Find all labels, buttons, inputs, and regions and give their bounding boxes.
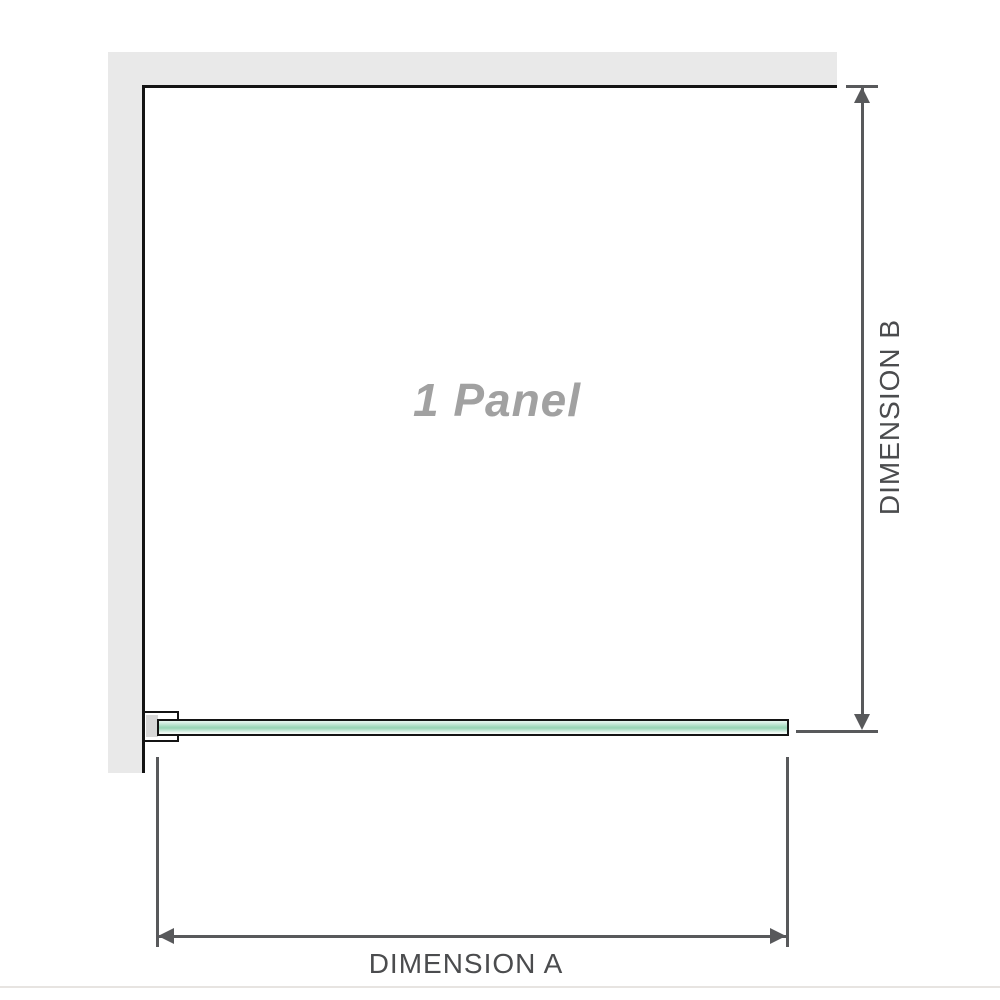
dimension-a-right-extension (786, 757, 789, 947)
dimension-a-left-extension (156, 757, 159, 947)
dimension-a-label: DIMENSION A (266, 948, 666, 980)
wall-left-plan (108, 52, 143, 773)
page-baseline-divider (0, 986, 1000, 988)
arrow-right-icon (770, 928, 786, 944)
wall-top-plan (108, 52, 837, 86)
dimension-b-label: DIMENSION B (874, 217, 906, 617)
dimension-b-line (861, 88, 864, 720)
arrow-up-icon (854, 87, 870, 103)
arrow-left-icon (158, 928, 174, 944)
arrow-down-icon (854, 714, 870, 730)
panel-count-label: 1 Panel (297, 368, 697, 432)
enclosure-top-edge (142, 85, 837, 88)
enclosure-left-edge (142, 85, 145, 773)
dimension-b-bottom-tick (796, 730, 878, 733)
glass-panel (157, 719, 789, 736)
dimension-a-line (158, 935, 786, 938)
shower-panel-diagram: 1 Panel DIMENSION B DIMENSION A (0, 0, 1000, 1000)
